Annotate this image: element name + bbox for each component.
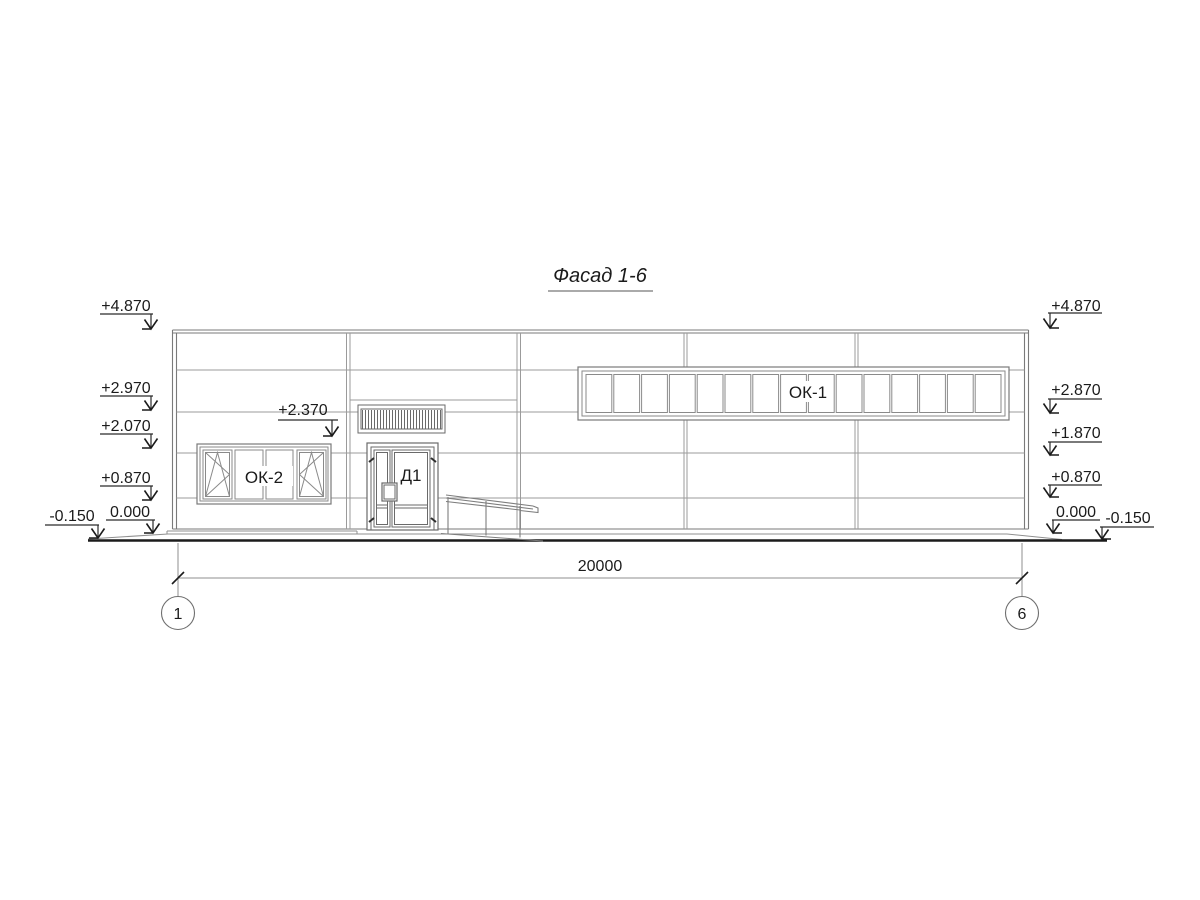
overall-dimension: 20000 xyxy=(172,543,1028,597)
grille-louvers xyxy=(363,410,441,429)
svg-text:+1.870: +1.870 xyxy=(1051,425,1100,442)
svg-text:+4.870: +4.870 xyxy=(101,298,150,315)
plinth-and-apron xyxy=(88,531,1062,540)
axis-bubble-6: 6 xyxy=(1006,597,1039,630)
facade-drawing: ОК-1 ОК-2 xyxy=(0,0,1200,900)
page-title: Фасад 1-6 xyxy=(553,265,648,287)
svg-text:+2.070: +2.070 xyxy=(101,418,150,435)
window-ok2: ОК-2 xyxy=(197,444,331,504)
elevation-arrow xyxy=(142,439,158,449)
svg-text:6: 6 xyxy=(1018,606,1027,623)
svg-text:0.000: 0.000 xyxy=(1056,504,1096,521)
title-block: Фасад 1-6 xyxy=(548,265,653,291)
window-ok2-label: ОК-2 xyxy=(245,468,283,487)
svg-text:+0.870: +0.870 xyxy=(1051,469,1100,486)
window-ok1: ОК-1 xyxy=(578,367,1009,420)
elevation-arrow xyxy=(323,427,339,437)
door-d1-label: Д1 xyxy=(401,466,422,485)
elevation-mark-right-1870: +1.870 xyxy=(1044,425,1103,455)
elevation-arrow xyxy=(1044,319,1060,329)
elevation-mark-right-4870: +4.870 xyxy=(1044,298,1103,328)
svg-text:+2.970: +2.970 xyxy=(101,380,150,397)
window-ok1-label: ОК-1 xyxy=(789,383,827,402)
elevation-arrow xyxy=(144,524,160,534)
elevation-mark-left-0870: +0.870 xyxy=(100,470,158,500)
elevation-mark-left-0000: 0.000 xyxy=(106,504,160,533)
elevation-mark-right-0870: +0.870 xyxy=(1044,469,1103,497)
elevation-mark-above-door: +2.370 xyxy=(278,402,339,436)
elevation-mark-right-minus0150: -0.150 xyxy=(1096,510,1155,539)
elevation-mark-left-4870: +4.870 xyxy=(100,298,158,329)
door-d1: Д1 xyxy=(367,443,438,530)
facade-drawing-sheet: ОК-1 ОК-2 xyxy=(0,0,1200,900)
vent-grille xyxy=(358,405,445,433)
elevation-marks-right: +4.870 +2.870 +1.870 +0.870 0.000 xyxy=(1044,298,1155,539)
elevation-mark-right-2870: +2.870 xyxy=(1044,382,1103,413)
svg-text:+0.870: +0.870 xyxy=(101,470,150,487)
elevation-arrow xyxy=(1044,404,1060,414)
elevation-mark-left-minus0150: -0.150 xyxy=(45,508,105,538)
elevation-arrow xyxy=(1047,524,1063,534)
elevation-arrow xyxy=(142,320,158,330)
elevation-arrow xyxy=(1044,488,1060,498)
elevation-arrow xyxy=(89,529,105,539)
axis-bubble-1: 1 xyxy=(162,597,195,630)
svg-text:+2.870: +2.870 xyxy=(1051,382,1100,399)
svg-text:1: 1 xyxy=(174,606,183,623)
elevation-mark-right-0000: 0.000 xyxy=(1047,504,1101,533)
svg-text:-0.150: -0.150 xyxy=(1105,510,1150,527)
svg-text:+2.370: +2.370 xyxy=(278,402,327,419)
elevation-mark-left-2970: +2.970 xyxy=(100,380,158,410)
elevation-arrow xyxy=(1096,530,1112,540)
elevation-arrow xyxy=(1044,446,1060,456)
elevation-mark-left-2070: +2.070 xyxy=(100,418,158,448)
dimension-20000: 20000 xyxy=(578,558,623,575)
svg-text:-0.150: -0.150 xyxy=(49,508,94,525)
svg-text:0.000: 0.000 xyxy=(110,504,150,521)
elevation-marks-left: +4.870 +2.970 +2.070 +0.870 0.000 xyxy=(45,298,160,538)
elevation-arrow xyxy=(142,401,158,411)
door-handle xyxy=(382,483,397,501)
elevation-arrow xyxy=(142,491,158,501)
